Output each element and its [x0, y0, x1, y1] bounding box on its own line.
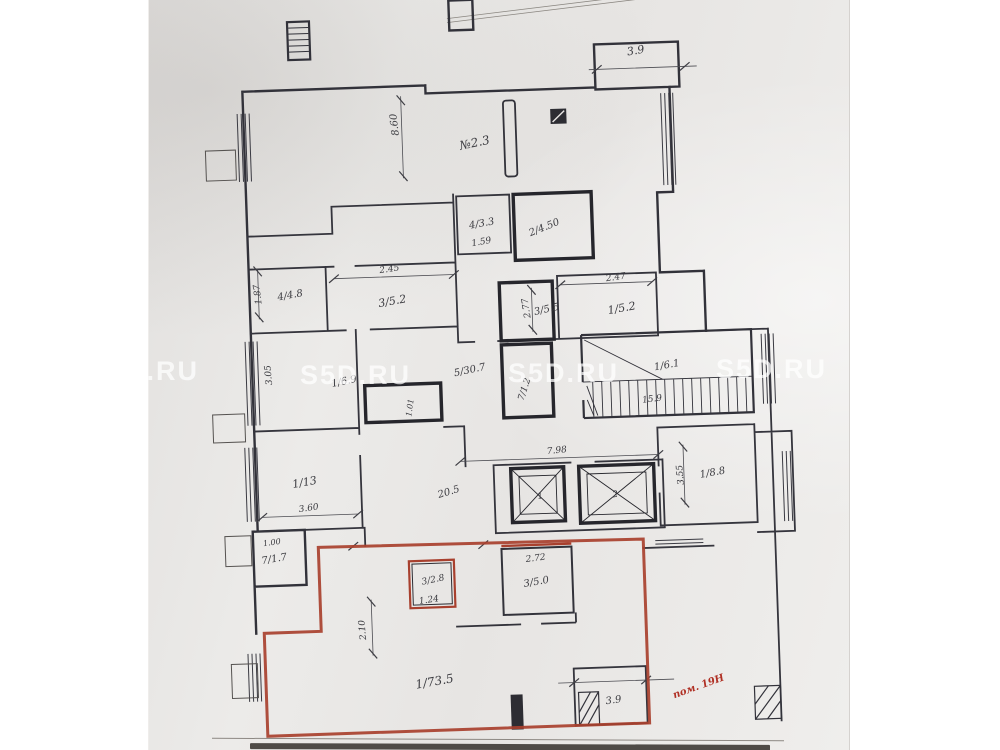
window-sills — [203, 150, 258, 699]
room-label: 3/2.8 — [421, 573, 446, 588]
room-label: 4/3.3 — [467, 216, 495, 231]
dim-label: 1.00 — [262, 537, 281, 548]
floorplan-drawing: 3.98.60№2.34/3.31.592/4.502.451.874/4.83… — [0, 0, 1000, 750]
mark-label: 1 — [537, 491, 544, 502]
room-label: 1/13 — [291, 474, 318, 491]
room-label: 1/6.1 — [653, 358, 680, 373]
interior-walls — [246, 183, 801, 738]
room-label: 7/1.7 — [261, 552, 289, 567]
room-label: №2.3 — [457, 133, 491, 153]
room-label: 1/73.5 — [414, 671, 454, 691]
room-label: 7/1.2 — [517, 377, 534, 402]
dim-label: 1.01 — [404, 398, 415, 417]
unit-label: пом. 19Н — [671, 672, 726, 701]
scan-crease-lines — [446, 0, 700, 23]
column-slim — [503, 100, 518, 176]
dim-label: 1.24 — [418, 594, 440, 607]
pier-hatched-left — [579, 692, 600, 726]
dim-label: 2.72 — [524, 553, 546, 566]
window-hatches — [229, 89, 798, 702]
pier-dark — [511, 694, 524, 729]
room-label: 3/5.0 — [523, 575, 551, 590]
stairwell — [581, 329, 754, 418]
scanned-floorplan-photo: 3.98.60№2.34/3.31.592/4.502.451.874/4.83… — [0, 0, 1000, 750]
room-label: 3.9 — [605, 694, 623, 707]
mark-label: 2 — [611, 490, 620, 501]
dim-label: 7.98 — [546, 445, 567, 457]
red-unit-outline — [261, 536, 649, 736]
dim-label: 1.59 — [471, 236, 493, 249]
plan-tilt-group: 3.98.60№2.34/3.31.592/4.502.451.874/4.83… — [198, 0, 801, 740]
room-label: 2/4.50 — [527, 217, 562, 240]
dim-label: 3.05 — [263, 364, 275, 385]
room-label: 1/6.9 — [330, 374, 358, 390]
dim-label: 3.55 — [675, 464, 687, 485]
elevator-shafts — [511, 464, 656, 526]
dim-label: 15.9 — [642, 393, 663, 405]
room-label: 4/4.8 — [276, 288, 304, 303]
dim-label: 20.5 — [436, 484, 461, 501]
room-label: 3.9 — [626, 43, 645, 59]
dim-label: 2.10 — [357, 619, 369, 641]
dim-label: 1.87 — [252, 284, 264, 305]
pier-hatched-right — [754, 685, 781, 719]
vent-shaft-top — [286, 0, 474, 60]
room-label: 3/5.5 — [533, 302, 560, 318]
room-label: 1/8.8 — [699, 465, 726, 480]
room-label: 1/5.2 — [607, 299, 637, 317]
dim-label: 3.60 — [298, 502, 320, 515]
dim-label: 2.45 — [378, 263, 400, 276]
scan-edge-band — [250, 743, 770, 750]
dim-label: 8.60 — [388, 112, 402, 136]
room-label: 3/5.2 — [377, 292, 407, 310]
room-label: 5/30.7 — [453, 362, 487, 380]
